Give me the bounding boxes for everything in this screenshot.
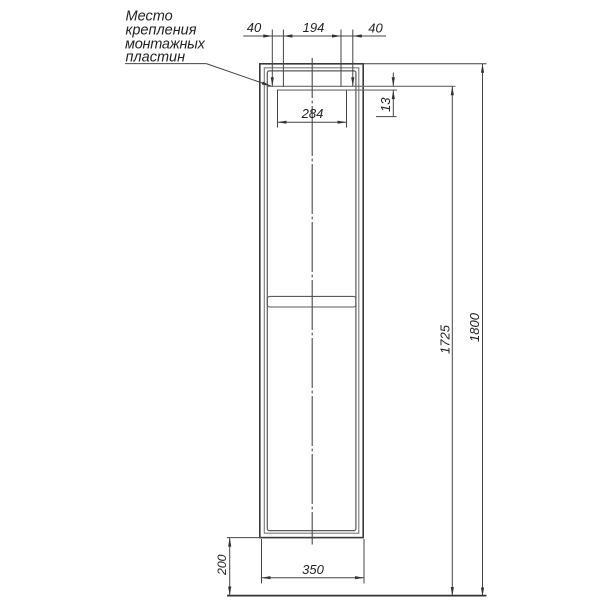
svg-text:40: 40 bbox=[247, 20, 262, 35]
svg-text:13: 13 bbox=[378, 97, 393, 112]
svg-text:1725: 1725 bbox=[438, 324, 453, 354]
svg-text:40: 40 bbox=[368, 21, 383, 36]
svg-text:350: 350 bbox=[302, 562, 324, 577]
svg-text:284: 284 bbox=[301, 106, 324, 121]
svg-text:1800: 1800 bbox=[467, 312, 482, 342]
svg-text:194: 194 bbox=[303, 20, 325, 35]
svg-text:200: 200 bbox=[215, 554, 229, 576]
